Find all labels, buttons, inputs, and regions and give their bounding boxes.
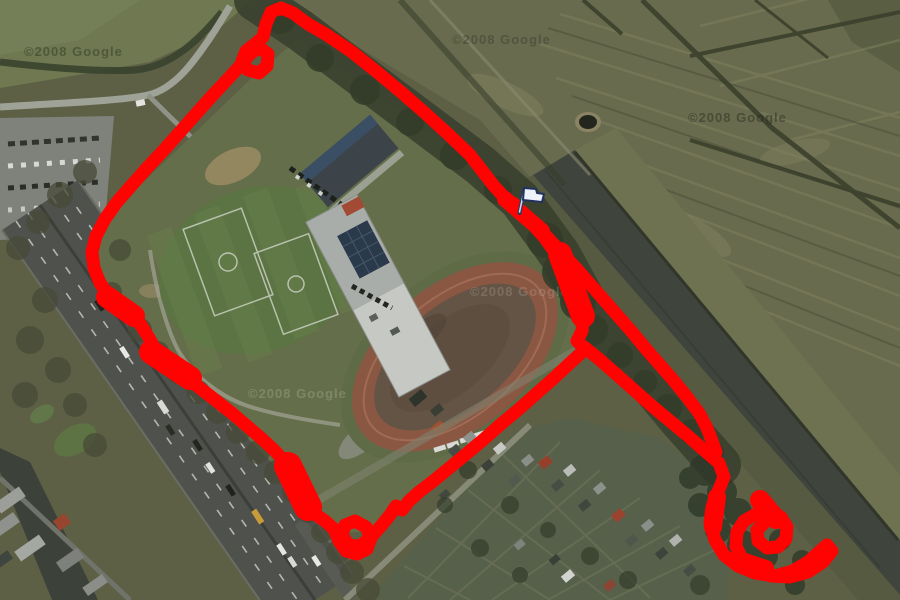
pond bbox=[579, 115, 597, 129]
watermark-text: ©2008 Google bbox=[248, 386, 347, 401]
watermark-text: ©2008 Google bbox=[452, 32, 551, 47]
watermark-text: ©2008 Google bbox=[688, 110, 787, 125]
watermark-text: ©2008 Google bbox=[24, 44, 123, 59]
satellite-map: ©2008 Google ©2008 Google ©2008 Google ©… bbox=[0, 0, 900, 600]
watermark-text: ©2008 Google bbox=[470, 284, 569, 299]
map-viewport[interactable]: ©2008 Google ©2008 Google ©2008 Google ©… bbox=[0, 0, 900, 600]
